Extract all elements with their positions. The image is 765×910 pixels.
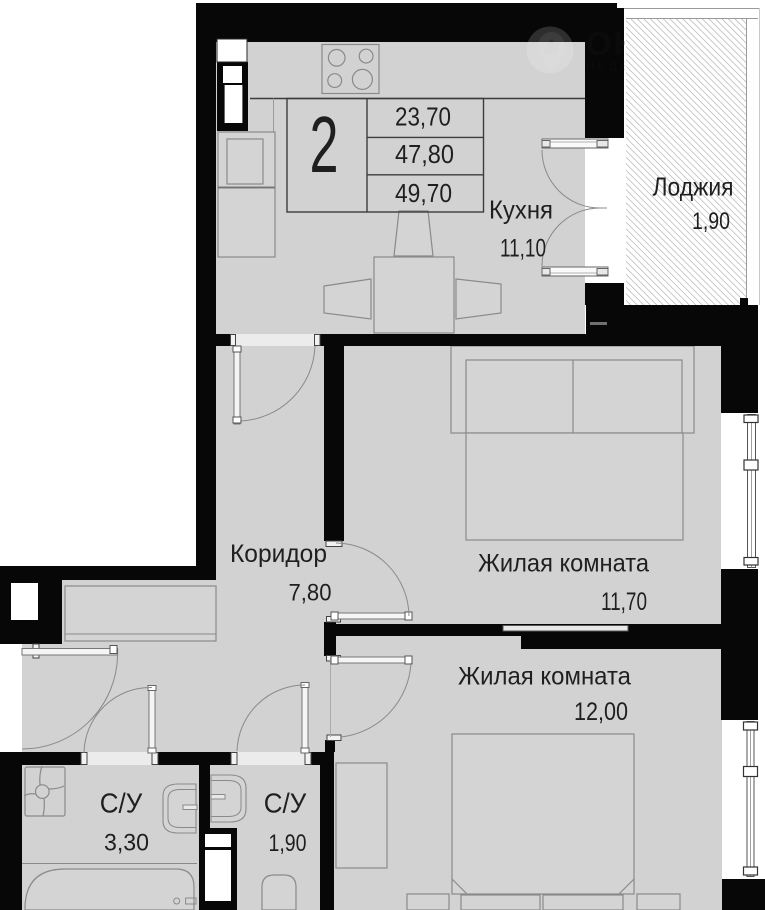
svg-text:С/У: С/У <box>100 788 143 819</box>
svg-text:Жилая комната: Жилая комната <box>458 663 631 691</box>
svg-text:7,80: 7,80 <box>289 580 332 607</box>
svg-text:1,90: 1,90 <box>692 208 730 235</box>
svg-text:23,70: 23,70 <box>395 102 451 132</box>
svg-text:47,80: 47,80 <box>395 139 454 169</box>
svg-text:49,70: 49,70 <box>395 178 452 208</box>
svg-text:2: 2 <box>310 100 339 189</box>
svg-text:Лоджия: Лоджия <box>653 172 734 202</box>
svg-text:Коридор: Коридор <box>230 540 327 568</box>
svg-text:12,00: 12,00 <box>574 698 628 726</box>
svg-text:3,30: 3,30 <box>104 830 149 857</box>
svg-text:1,90: 1,90 <box>269 830 307 857</box>
svg-text:11,10: 11,10 <box>500 235 546 263</box>
svg-text:С/У: С/У <box>264 788 307 819</box>
svg-text:11,70: 11,70 <box>601 588 647 616</box>
svg-text:Жилая комната: Жилая комната <box>478 550 649 578</box>
svg-text:Кухня: Кухня <box>489 195 553 225</box>
